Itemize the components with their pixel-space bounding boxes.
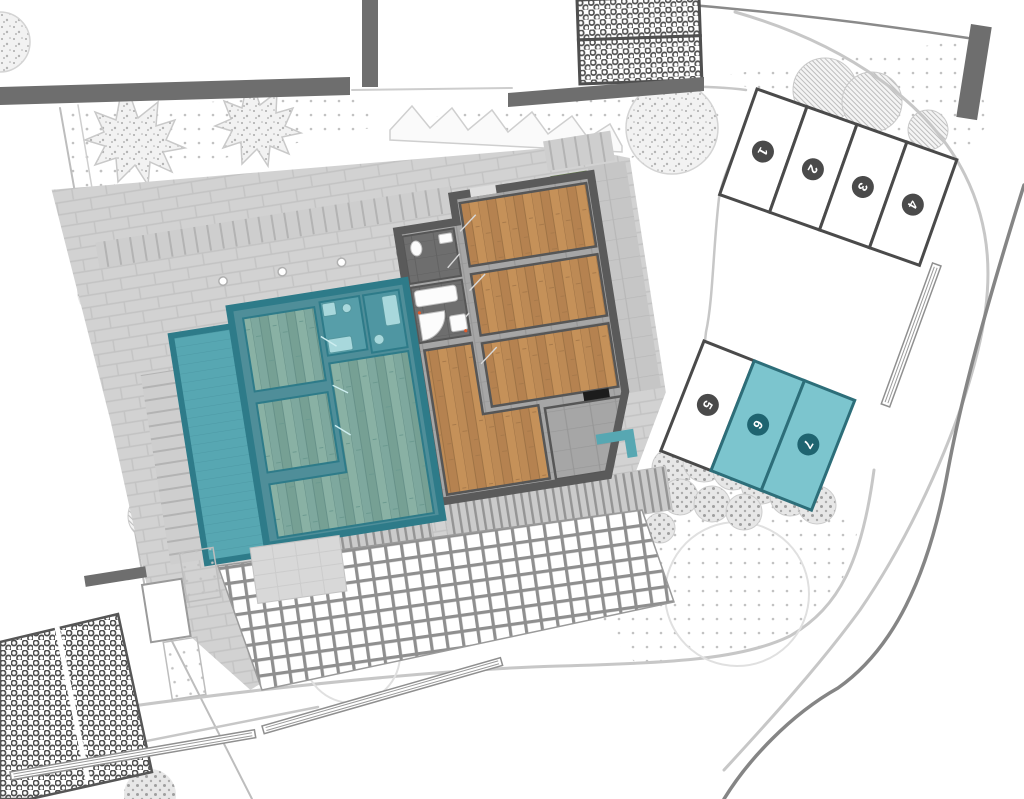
teal-bedroom-2 [257,392,339,472]
wall-north-post [362,0,378,87]
teal-bedroom-1 [243,307,326,391]
yard-box-dotted [179,547,220,602]
site-plan-canvas: 1 2 3 4 5 6 7 [0,0,1024,799]
yard-box [142,579,191,643]
paver-parking-north [577,0,702,84]
site-plan-stage: 1 2 3 4 5 6 7 [0,0,1024,799]
